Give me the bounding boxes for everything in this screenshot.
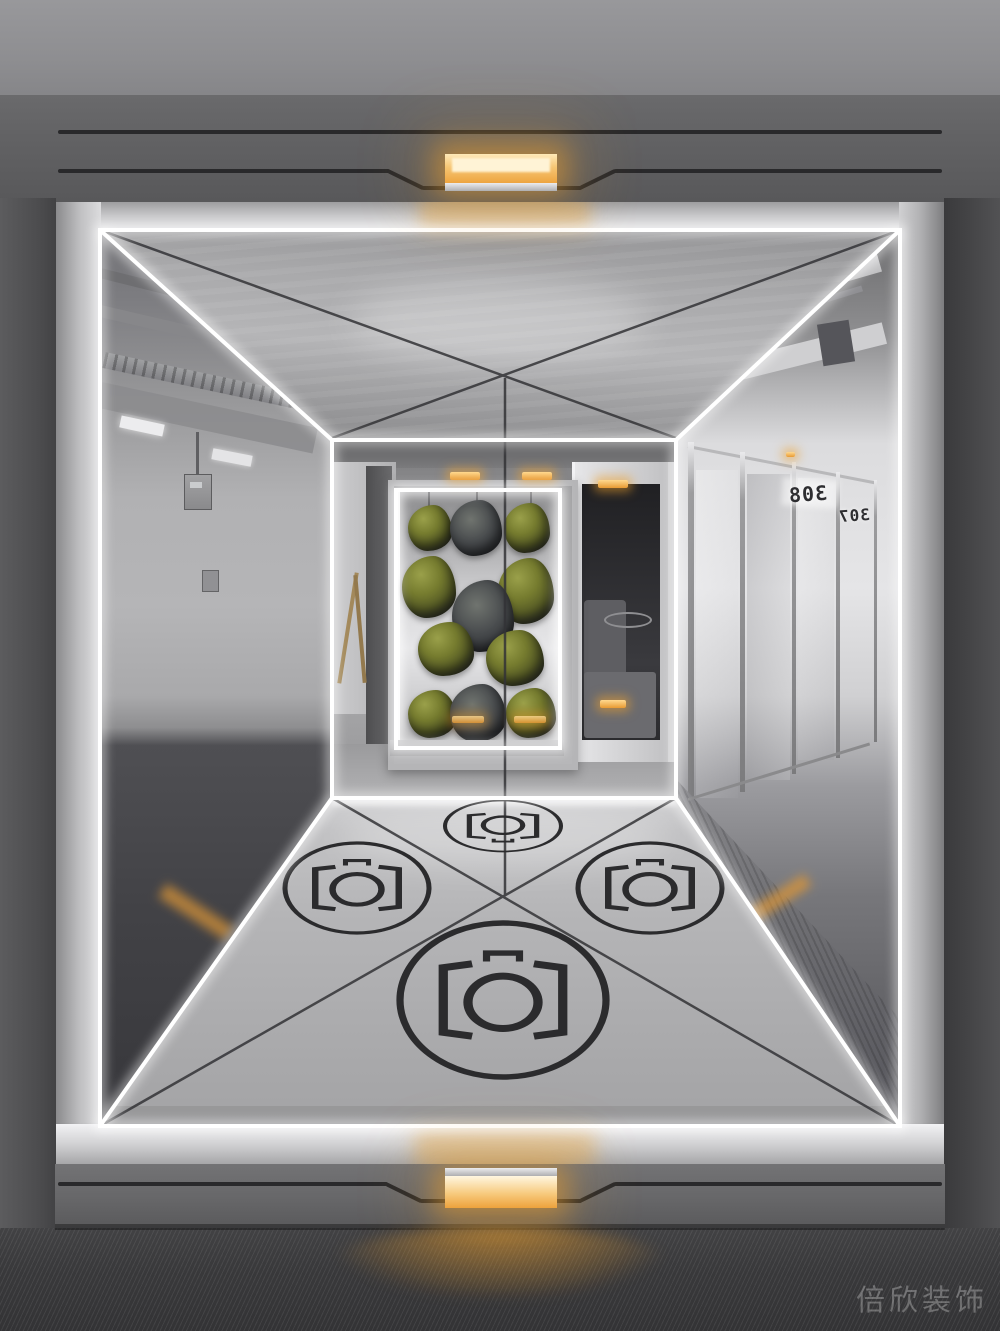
panel-seams <box>100 230 900 1126</box>
camera-icon-reflection <box>445 801 561 852</box>
bottom-groove-right <box>614 1182 942 1186</box>
watermark: 倍欣装饰 <box>856 1277 988 1319</box>
camera-icon-front <box>400 923 606 1077</box>
dark-wall-right <box>944 198 1000 1234</box>
led-glow <box>100 230 900 1126</box>
led-strips <box>100 230 900 1126</box>
top-light-core <box>452 158 550 172</box>
top-light-bracket <box>445 183 557 191</box>
header-groove-upper <box>58 130 942 134</box>
bottom-light-bracket <box>445 1168 557 1176</box>
floor-camera-icons <box>285 801 722 1078</box>
camera-icon-right <box>578 843 722 933</box>
bottom-light-bar <box>445 1176 557 1208</box>
photo-mirror-room: 308 307 <box>0 0 1000 1331</box>
carpet-amber-glow <box>330 1228 670 1298</box>
dark-wall-left <box>0 198 56 1234</box>
concrete-wall-top <box>0 0 1000 98</box>
header-groove-left <box>58 169 390 173</box>
camera-icon-left <box>285 843 429 933</box>
header-groove-right <box>614 169 942 173</box>
bottom-groove-left <box>58 1182 388 1186</box>
